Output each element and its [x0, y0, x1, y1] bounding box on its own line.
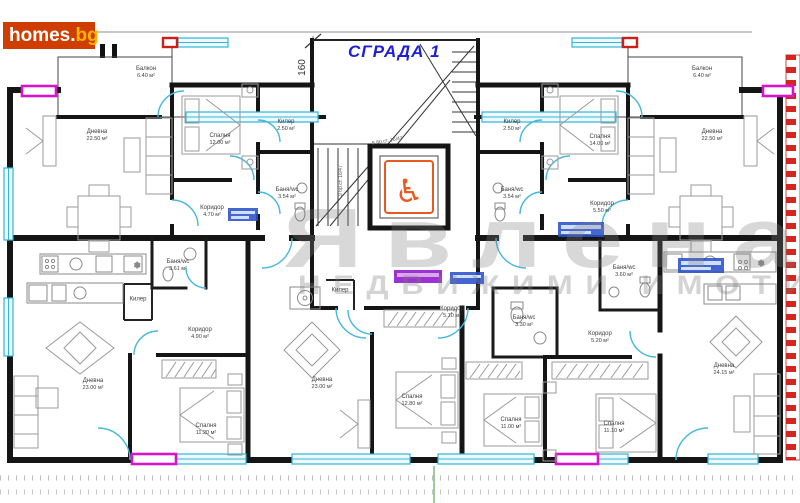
logo-text-accent: bg [76, 25, 99, 47]
watermark-subtitle: НЕДВИЖИМИ ИМОТИ [298, 272, 800, 299]
stair-note-lower: 9 бр.ст. 16/47 [338, 165, 344, 196]
dimension-label: 160 [297, 59, 308, 76]
building-title: СГРАДА 1 [348, 42, 441, 62]
watermark-brand: Явлена [283, 196, 800, 280]
fridge-snowflake-icon: ❄ [134, 261, 141, 270]
homes-logo[interactable]: homes.bg [3, 22, 95, 49]
logo-text-main: homes. [9, 25, 76, 47]
floorplan-screenshot: ♿ [0, 0, 800, 503]
